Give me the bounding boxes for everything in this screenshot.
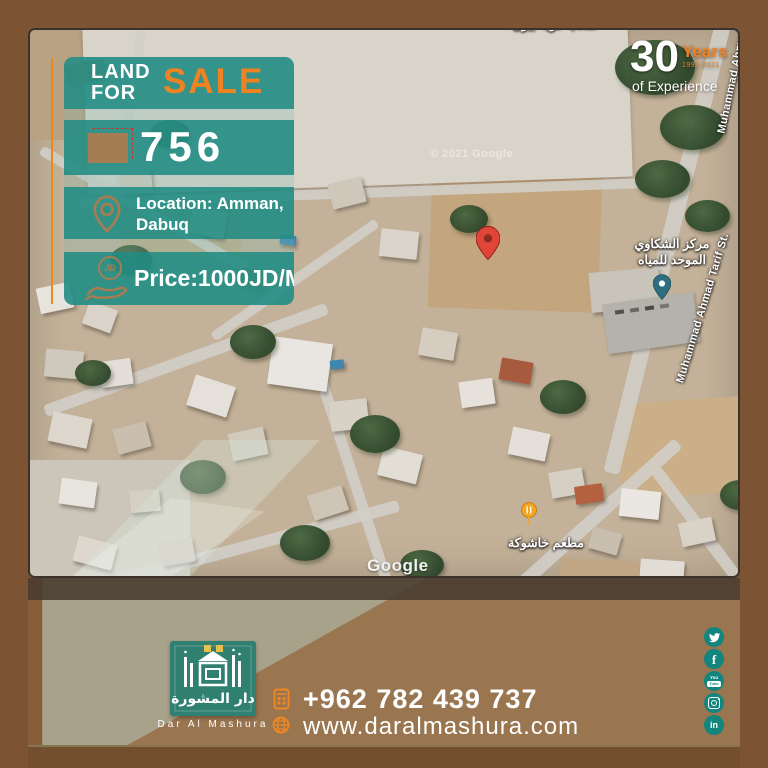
footer-dark-band	[28, 578, 740, 600]
phone-number: +962 782 439 737	[303, 684, 537, 715]
sale-label: SALE	[163, 62, 264, 102]
website-url: www.daralmashura.com	[303, 713, 579, 741]
water-center-pin-icon	[653, 274, 671, 300]
facebook-icon: f	[704, 649, 724, 669]
social-icons: f You Tube in	[704, 627, 726, 737]
location-band: Location: Amman, Dabuq	[64, 187, 294, 239]
facebook-glyph: f	[712, 652, 716, 668]
plot-square-icon	[88, 133, 128, 163]
map-label-top-arabic: ملعب قرية بيون	[470, 28, 640, 32]
globe-icon	[272, 716, 290, 734]
land-label: LAND	[91, 62, 151, 83]
twitter-icon	[704, 627, 724, 647]
logo-arabic-text: دار المشورة	[171, 691, 255, 707]
youtube-icon: You Tube	[704, 671, 724, 691]
youtube-glyph-top: You	[710, 676, 718, 680]
restaurant-pin-icon	[520, 502, 538, 528]
brand-name: Dar Al Mashura	[150, 719, 276, 730]
location-text: Location: Amman, Dabuq	[136, 193, 284, 235]
plot-number: 756	[140, 123, 225, 171]
linkedin-icon: in	[704, 715, 724, 735]
phone-icon	[273, 688, 290, 710]
location-pin-icon	[90, 194, 124, 234]
jd-coin-label: JD	[104, 263, 116, 273]
experience-range: 1991-2021	[682, 62, 720, 69]
experience-caption: of Experience	[632, 78, 740, 94]
poi-water-line1: مركز الشكاوي	[612, 236, 732, 252]
company-logo: دار المشورة	[170, 641, 256, 716]
accent-line	[51, 58, 53, 304]
linkedin-glyph: in	[710, 720, 718, 730]
poi-restaurant-label: مطعم خاشوكة	[498, 535, 594, 550]
google-copyright: © 2021 Google	[430, 148, 513, 160]
price-band: JD Price:1000JD/M	[64, 252, 294, 305]
location-line1: Location: Amman,	[136, 193, 284, 214]
instagram-icon	[704, 693, 724, 713]
poi-water-line2: الموحد للمياه	[612, 252, 732, 268]
experience-number: 30	[630, 36, 679, 78]
youtube-glyph-box: Tube	[707, 681, 720, 687]
google-watermark: Google	[367, 556, 429, 576]
experience-badge: 30 Years 1991-2021 of Experience	[630, 36, 740, 94]
sale-land-pin-icon	[476, 226, 500, 260]
poster-canvas: ملعب قرية بيون Muhammad Ahmad Tarif St. …	[0, 0, 768, 768]
price-hand-coin-icon: JD	[84, 256, 130, 302]
price-text: Price:1000JD/M	[134, 265, 294, 292]
plot-number-band: 756	[64, 120, 294, 175]
poi-water-center-label: مركز الشكاوي الموحد للمياه	[612, 236, 732, 268]
location-line2: Dabuq	[136, 214, 284, 235]
footer-band	[28, 745, 740, 768]
satellite-map: ملعب قرية بيون Muhammad Ahmad Tarif St. …	[28, 28, 740, 578]
offer-panel: LAND FOR SALE 756 Location: Amman, Dabuq	[64, 57, 294, 305]
land-for-label: LAND FOR	[91, 62, 151, 104]
offer-header-band: LAND FOR SALE	[64, 57, 294, 109]
experience-years: Years	[682, 42, 727, 62]
for-label: FOR	[91, 83, 151, 104]
